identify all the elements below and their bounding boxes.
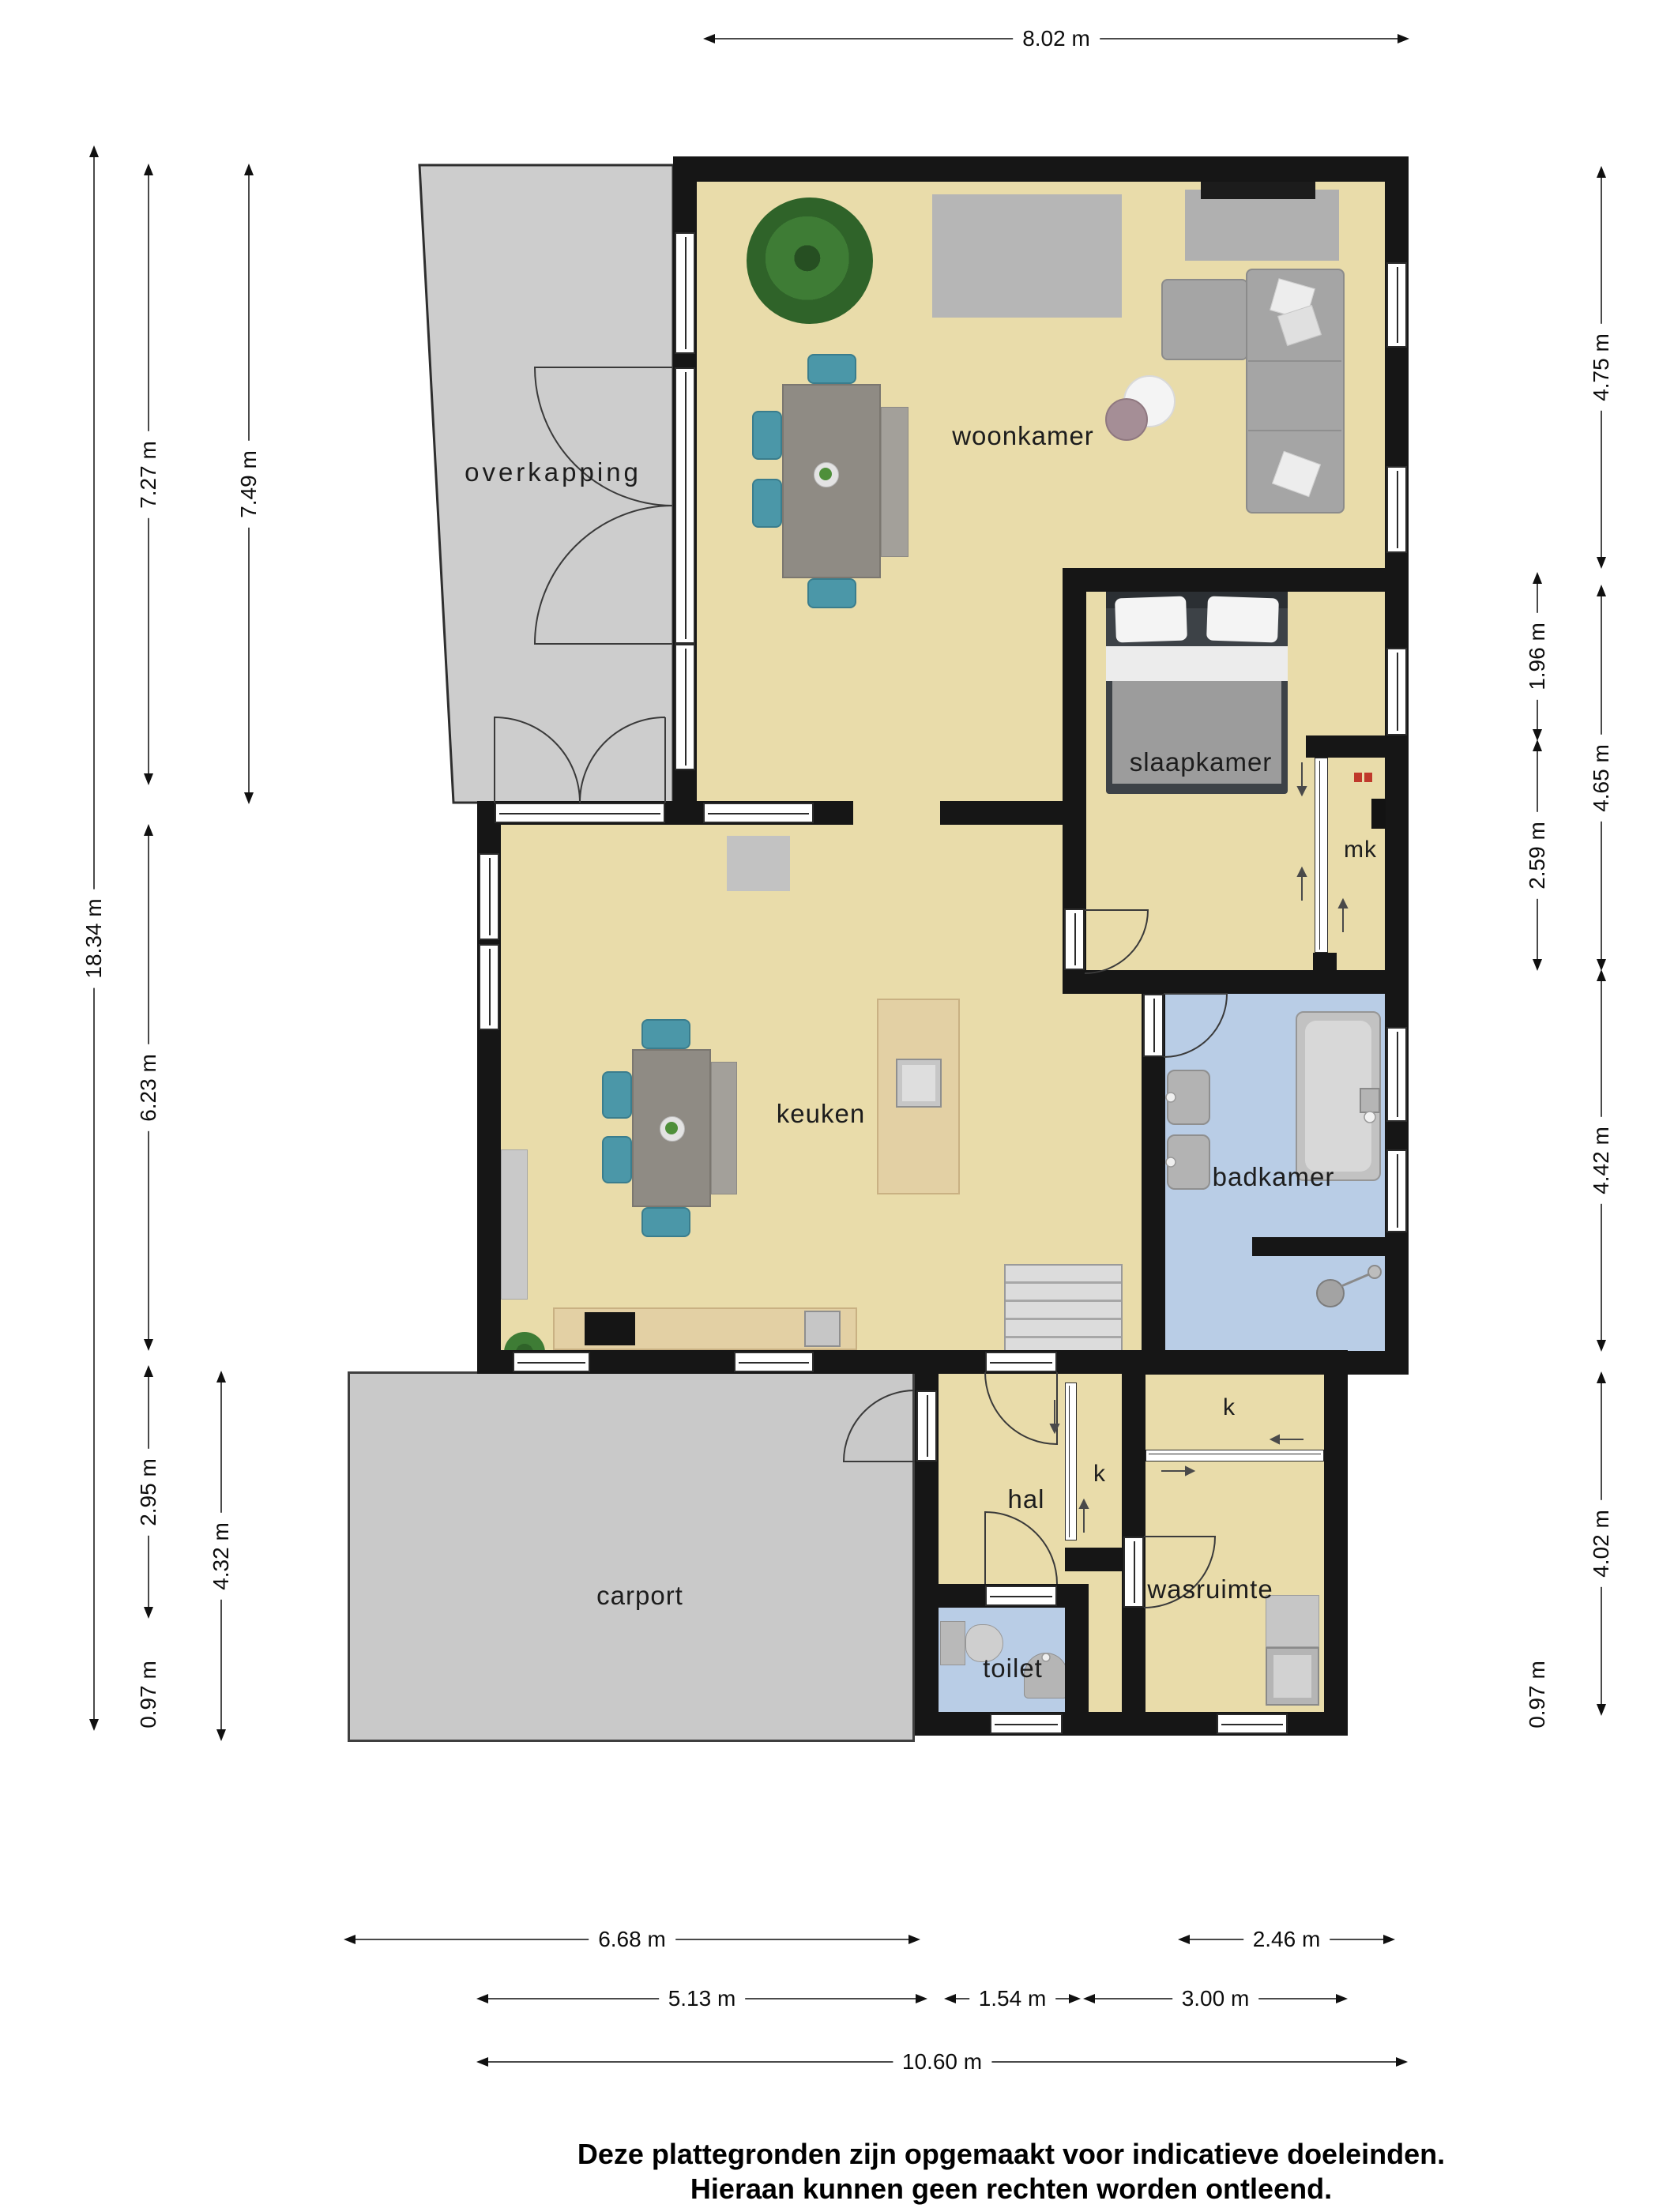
dim-slaapkamer-height: 4.65 m: [1595, 585, 1608, 970]
dim-total-height: 18.34 m: [88, 146, 100, 1730]
dim-keuken-height: 6.23 m: [142, 825, 155, 1350]
dim-wasruimte-width: 3.00 m: [1084, 1992, 1347, 2005]
dim-bottom-block-height: 4.02 m: [1595, 1372, 1608, 1715]
bathtub-faucet-icon: [1360, 1089, 1379, 1123]
room-label-overkapping: overkapping: [465, 457, 641, 487]
slide-arrow-icon: [1161, 1467, 1194, 1475]
door-arc: [985, 1512, 1057, 1584]
dim-badkamer-width: 2.46 m: [1179, 1933, 1394, 1946]
slide-arrow-icon: [1339, 900, 1347, 932]
dim-slaapkamer-lower: 2.59 m: [1531, 740, 1544, 970]
room-label-keuken: keuken: [777, 1099, 865, 1129]
room-label-toilet: toilet: [983, 1653, 1043, 1683]
slide-arrow-icon: [1080, 1500, 1088, 1533]
disclaimer-line-1: Deze plattegronden zijn opgemaakt voor i…: [411, 2138, 1612, 2171]
shower-icon: [1317, 1266, 1381, 1307]
slide-arrow-icon: [1298, 762, 1306, 795]
dim-woonkamer-height-left: 7.27 m: [142, 164, 155, 784]
dim-carport-height: 4.32 m: [215, 1371, 228, 1740]
room-label-badkamer: badkamer: [1213, 1162, 1335, 1192]
dim-total-width: 10.60 m: [477, 2056, 1407, 2068]
door-arc: [1085, 910, 1148, 973]
dim-entry-right-height: 0.97 m: [1531, 1653, 1544, 1736]
dim-keuken-width: 5.13 m: [477, 1992, 927, 2005]
dim-slaapkamer-upper: 1.96 m: [1531, 573, 1544, 740]
door-arc: [535, 506, 673, 644]
room-label-hal: hal: [1007, 1484, 1044, 1514]
door-arc: [985, 1372, 1057, 1444]
room-label-slaapkamer: slaapkamer: [1130, 747, 1273, 777]
dim-overkapping-height: 7.49 m: [243, 164, 255, 803]
dim-carport-width: 6.68 m: [344, 1933, 920, 1946]
slide-arrow-icon: [1298, 868, 1306, 901]
dim-hal-width: 1.54 m: [945, 1992, 1080, 2005]
room-label-k-top: k: [1223, 1394, 1236, 1421]
dim-entry-left-height: 0.97 m: [142, 1653, 155, 1736]
dim-badkamer-height: 4.42 m: [1595, 970, 1608, 1351]
door-arc: [1164, 994, 1227, 1057]
room-label-wasruimte: wasruimte: [1147, 1574, 1273, 1604]
dim-woonkamer-height-right: 4.75 m: [1595, 167, 1608, 568]
door-arc: [495, 717, 580, 803]
room-label-woonkamer: woonkamer: [952, 421, 1094, 451]
door-arc: [580, 717, 665, 803]
door-arc: [844, 1390, 915, 1461]
room-label-carport: carport: [596, 1581, 683, 1611]
room-label-mk: mk: [1344, 837, 1377, 863]
disclaimer-line-2: Hieraan kunnen geen rechten worden ontle…: [411, 2172, 1612, 2206]
room-label-k-hal: k: [1093, 1461, 1106, 1488]
dim-keuken-lower-height: 2.95 m: [142, 1366, 155, 1618]
dim-top-width: 8.02 m: [704, 32, 1409, 45]
slide-arrow-icon: [1271, 1435, 1303, 1443]
